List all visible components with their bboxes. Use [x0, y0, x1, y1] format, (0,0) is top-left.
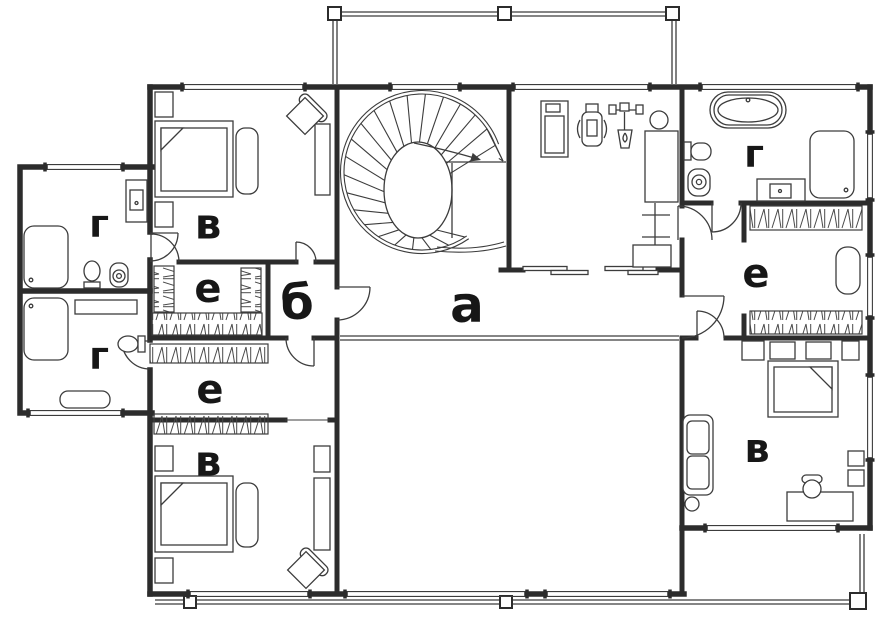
dressing-right-furniture [836, 247, 860, 294]
sink-vanity [126, 180, 147, 222]
pillow [770, 342, 795, 359]
terrace-railing [155, 534, 866, 609]
bathroom-lower-left-fixtures [24, 298, 145, 408]
pillow [806, 342, 831, 359]
dresser [315, 124, 330, 195]
floor-plan-page: а б в в в г г г е е е [0, 0, 881, 626]
wardrobe-hatch [150, 344, 268, 363]
terrace-post [500, 596, 512, 608]
room-label-bedroom-right: в [744, 426, 769, 472]
window [188, 590, 310, 599]
gym-bench [633, 245, 671, 267]
desk-chair [802, 475, 822, 498]
bath-mat [60, 391, 110, 408]
bed [155, 121, 233, 197]
nightstand [842, 341, 859, 360]
spiral-staircase [340, 90, 506, 253]
window [545, 590, 670, 599]
toilet-icon [118, 336, 145, 352]
window [28, 409, 123, 418]
window [705, 524, 838, 533]
gym-ball [650, 111, 668, 129]
bench [236, 483, 258, 547]
bathroom-upper-left-fixtures [24, 180, 147, 288]
dresser [314, 478, 330, 550]
wardrobes [150, 206, 862, 434]
window [700, 83, 858, 92]
wardrobe-hatch [241, 268, 261, 312]
room-label-dressing-lower-left: е [196, 367, 223, 413]
window [182, 83, 305, 92]
wardrobe-hatch [152, 313, 262, 335]
room-label-bathroom-lower-left: г [89, 334, 109, 378]
bed [155, 476, 233, 552]
wardrobe-hatch [750, 311, 862, 334]
desk [787, 492, 853, 521]
nightstand [155, 202, 173, 227]
treadmill [541, 101, 568, 157]
balcony-post [328, 7, 341, 20]
room-label-dressing-right: е [742, 251, 769, 297]
armchair [285, 546, 330, 591]
balcony-post [498, 7, 511, 20]
bidet-icon [688, 169, 710, 196]
bedroom-top-left-furniture [155, 92, 330, 227]
exercise-bike [578, 104, 607, 146]
sink-vanity [757, 179, 805, 201]
hall-void-edge [340, 336, 679, 340]
room-label-hall: а [450, 276, 484, 334]
exercise-mat [645, 131, 678, 202]
toilet-icon [84, 261, 100, 288]
ottoman [836, 247, 860, 294]
bench [236, 128, 258, 194]
shelf [848, 470, 864, 486]
shelf [75, 300, 137, 314]
side-table [685, 497, 699, 511]
window [866, 255, 875, 318]
gym-equipment [541, 101, 678, 267]
weight-machine [609, 103, 643, 148]
window [513, 83, 650, 92]
sliding-door [523, 267, 658, 275]
bathtub [710, 92, 786, 128]
wardrobe-hatch [154, 266, 174, 312]
barbell-rack [642, 203, 670, 247]
shelf [314, 446, 330, 472]
bedroom-bottom-left-furniture [155, 446, 330, 591]
room-label-bedroom-top-left: в [195, 200, 222, 249]
bathroom-top-right-fixtures [684, 92, 854, 201]
room-label-bathroom-top-right: г [744, 132, 764, 176]
nightstand [155, 558, 173, 583]
floor-plan-drawing: а б в в в г г г е е е [0, 0, 881, 626]
nightstand [155, 446, 173, 471]
nightstand [155, 92, 173, 117]
sofa [683, 415, 713, 495]
shower-tray [810, 131, 854, 198]
room-label-bathroom-upper-left: г [89, 202, 109, 246]
wardrobe-hatch [750, 206, 862, 230]
window [866, 375, 875, 460]
toilet-icon [684, 142, 711, 160]
room-label-dressing-upper-left: е [194, 266, 221, 312]
bedroom-right-furniture [683, 341, 864, 521]
nightstand [742, 341, 764, 360]
window [45, 163, 123, 172]
room-label-vestibule: б [280, 275, 314, 331]
bed [768, 361, 838, 417]
balcony-railing [328, 7, 679, 84]
terrace-post [184, 596, 196, 608]
room-label-bedroom-bottom-left: в [195, 437, 222, 486]
shelf [848, 451, 864, 466]
wardrobe-hatch [154, 414, 268, 434]
bidet-icon [110, 263, 128, 287]
balcony-post [666, 7, 679, 20]
window [866, 132, 875, 200]
terrace-post [850, 593, 866, 609]
